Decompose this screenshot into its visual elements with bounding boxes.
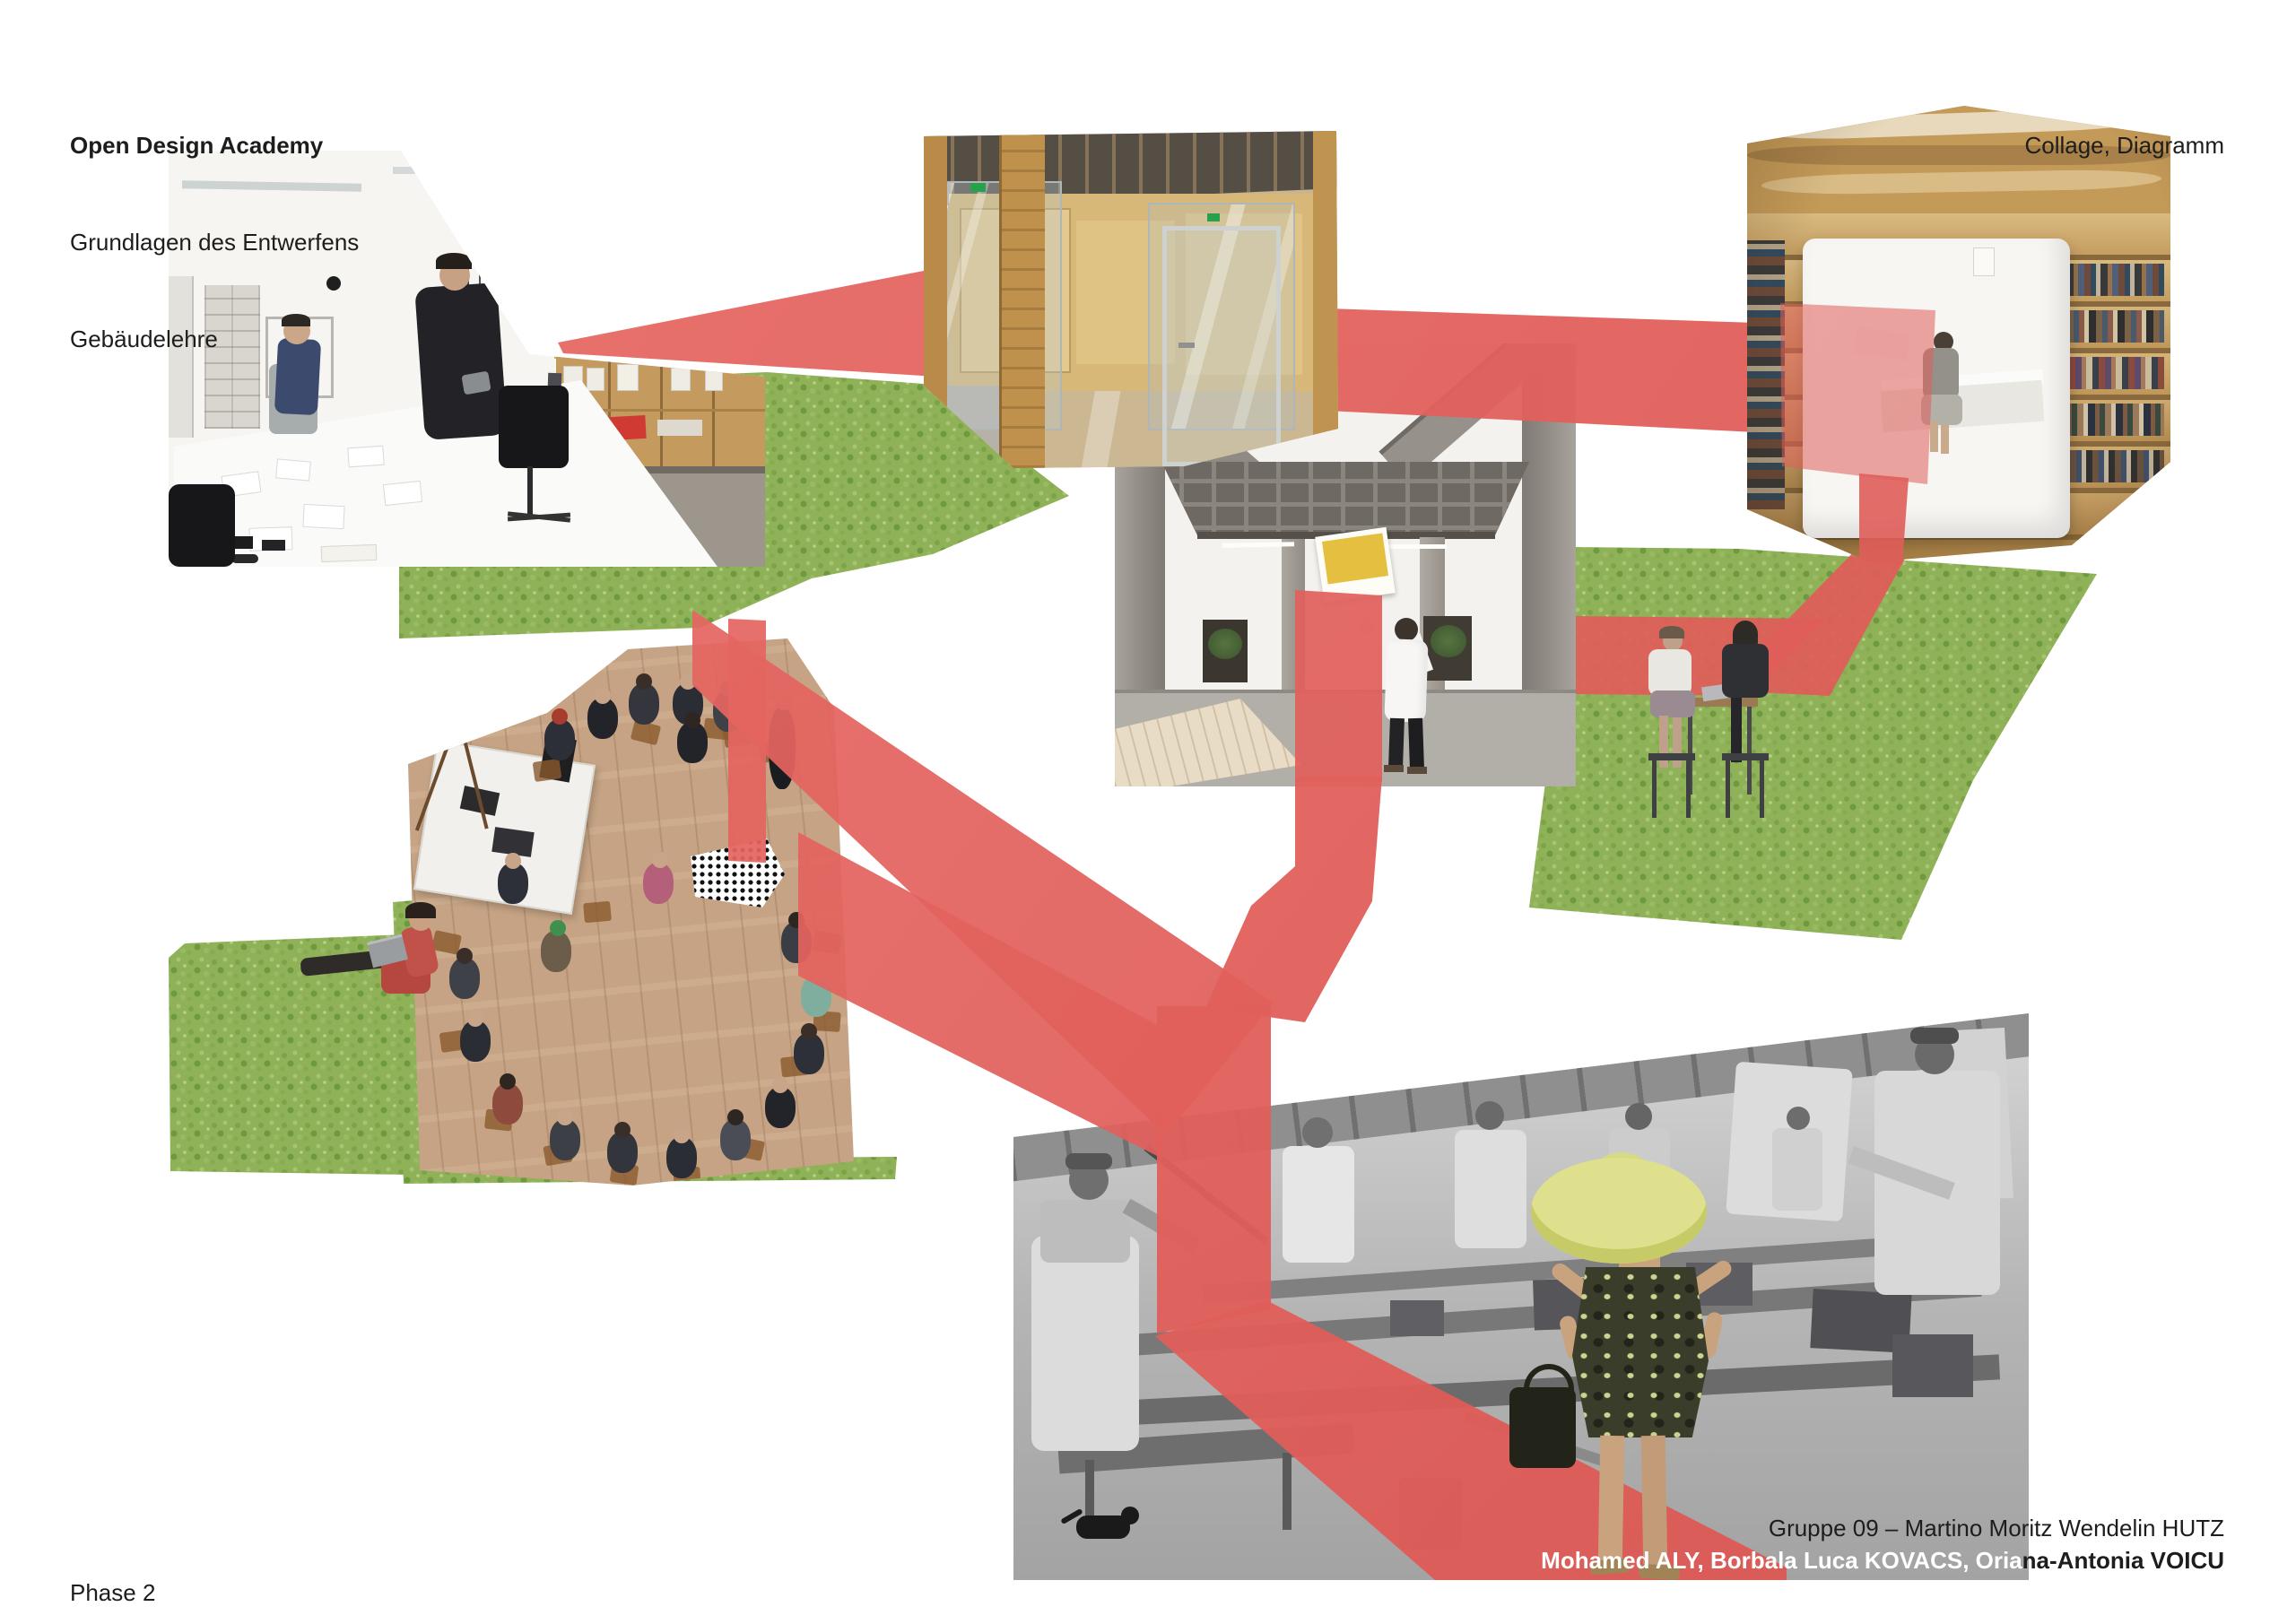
pendant-cable [479,151,481,285]
person-head [727,1109,744,1125]
person-head [680,673,696,690]
cable-coil [231,554,258,563]
person-skirt [1650,690,1695,717]
ceiling-light [393,167,527,174]
reader-skirt [1921,395,1962,425]
floral-dress [1572,1267,1709,1437]
person-head [636,673,652,690]
chair [533,759,562,782]
presentation-board: Open Design Academy Grundlagen des Entwe… [0,0,2296,1624]
grass-meadow-right [1529,547,2097,940]
person-head [674,1127,690,1143]
header-left: Open Design Academy Grundlagen des Entwe… [70,65,359,420]
binder [617,364,639,391]
photo-seminar-circle [408,637,857,1185]
person-presenter [643,863,674,904]
white-binder [321,544,378,562]
course-name: Grundlagen des Entwerfens [70,226,359,258]
chair [583,901,612,924]
document-type-label: Collage, Diagramm [1399,129,2224,161]
group-line: Gruppe 09 – Martino Moritz Wendelin HUTZ [0,1512,2224,1544]
worker-head [1475,1101,1504,1130]
person-head [808,966,824,982]
binder [671,368,691,391]
worker [1283,1146,1354,1263]
ribbon-pavilion-bend [1205,777,1382,1022]
ribbon-studio-to-glass [558,268,937,377]
stool-leg [1686,760,1691,818]
worker-head [1302,1117,1333,1148]
person-shoe [1384,765,1404,772]
subject-name: Gebäudelehre [70,323,359,355]
names-line-white: Mohamed ALY, Borbala Luca KOVACS, Oriana… [0,1544,2224,1576]
paper-sheet [275,458,311,481]
person [541,931,571,972]
header-right: Collage, Diagramm [1399,65,2224,226]
reader-leg [1930,421,1938,452]
person-hair [1659,626,1684,638]
plywood-column [1313,131,1338,439]
stool-leg [1726,760,1730,818]
worker-head [1787,1107,1810,1130]
camera-gear [262,540,285,551]
paper-sheet [347,446,384,468]
person-standing [769,707,796,789]
chair [812,931,841,955]
person-head [595,688,611,704]
chair-post [527,466,533,517]
person-hand [1359,618,1375,634]
person-leg [1408,718,1424,769]
person-on-table [414,282,508,440]
table-leg [1747,707,1752,795]
person-head [684,712,700,728]
person-head [614,1122,631,1138]
page-title: Open Design Academy [70,129,359,161]
person-torso [1648,649,1692,696]
exit-sign [970,183,986,192]
shelf-sign [1973,248,1995,276]
door-handle [1178,343,1195,348]
paper-sheet [383,481,422,506]
person-hair [436,253,472,269]
binder [705,366,723,391]
person-torso [1722,644,1769,698]
person-leg [1388,718,1405,768]
machine-box [1892,1334,1973,1397]
person-head [772,1077,788,1093]
ribbon-seminar-lower-diagonal [798,832,1162,1159]
office-chair [499,386,569,468]
worker-head [1625,1103,1652,1130]
reader-body [1923,348,1959,400]
person-head [776,694,792,710]
sideboard-top [554,350,765,359]
person-head [1395,618,1418,641]
figure-woman-with-laptop [296,904,475,1012]
stool-leg [1760,760,1764,818]
phase-label: Phase 2 [70,1576,482,1609]
plant [1431,625,1466,657]
sideboard-divider [660,355,663,472]
hair [405,902,436,918]
handbag [1509,1387,1576,1468]
person-head [467,1011,483,1027]
reader-leg [1941,425,1949,454]
photo-glass-partitions [924,131,1338,468]
person-head [557,1109,573,1125]
plant [1208,629,1242,659]
exit-sign [1207,213,1220,221]
figure-two-people-at-table [1632,619,1785,825]
person [544,719,575,760]
machine-box [1390,1300,1444,1336]
person-head [788,912,804,928]
stool [1648,753,1695,760]
binder [587,368,604,391]
person-shoe [1407,767,1427,774]
office-chair [169,484,235,567]
sun-hat-brim [1531,1158,1707,1264]
person-head [801,1023,817,1039]
person-head [552,708,568,725]
worker-cap [1065,1153,1112,1169]
yellow-artwork-print [1322,534,1388,585]
person-head [505,853,521,869]
plywood-column [999,131,1045,468]
worker-apron [1031,1236,1139,1451]
person-head [720,681,736,697]
person-head [500,1073,516,1090]
stool-leg [1652,760,1657,818]
paper-sheet [302,504,344,529]
worker-cap [1910,1028,1959,1044]
person-torso-white [1384,638,1428,723]
worker-torso [1040,1200,1130,1263]
stool [1722,753,1769,760]
person-head [550,920,566,936]
person-head [652,852,668,868]
plywood-column [924,135,947,413]
paper-stack [657,420,702,436]
